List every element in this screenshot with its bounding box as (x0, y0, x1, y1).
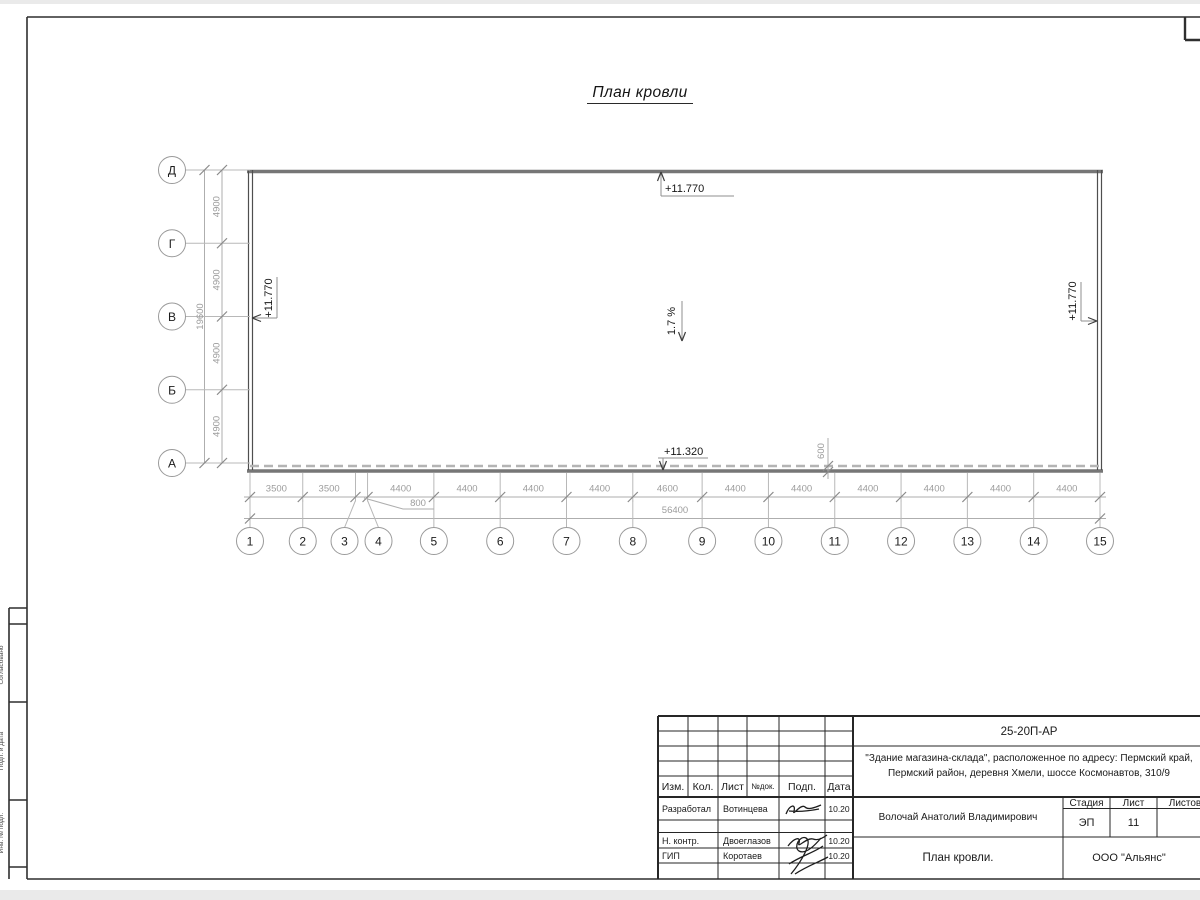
overhang-dim-value: 600 (816, 443, 827, 459)
col-dim-value: 4400 (589, 484, 610, 495)
col-dim-value: 4400 (990, 484, 1011, 495)
tb-header-podp: Подп. (779, 777, 825, 796)
col-axis-label: 11 (829, 535, 842, 549)
slope-value: 1.7 % (666, 307, 678, 335)
col-dim-value: 4400 (857, 484, 878, 495)
row-axis-label: А (168, 457, 176, 471)
col-axis-label: 3 (341, 535, 348, 549)
tb-name-korotaev: Коротаев (720, 848, 779, 863)
row-axis-label: Д (168, 164, 176, 178)
side-stamp-label-1: Согласовано (0, 645, 5, 684)
col-axis-label: 10 (762, 535, 776, 549)
tb-role-razrabotal: Разработал (659, 799, 718, 819)
col-dim-value: 4400 (725, 484, 746, 495)
tb-approver: Волочай Анатолий Владимирович (853, 798, 1063, 836)
roof-plan-canvas: Согласовано Подп. и дата Инв. № подл. ДГ… (0, 0, 1200, 900)
tb-header-ndok: №док. (747, 777, 779, 796)
col-axis-label: 7 (563, 535, 570, 549)
signature-gip (789, 838, 828, 874)
row-dim-value: 4900 (212, 416, 223, 437)
tb-sheet-label: Лист (1110, 797, 1157, 809)
slope-annotation: 1.7 % (666, 301, 686, 341)
elevation-mark-left: +11.770 (252, 277, 277, 322)
row-axis-label: Г (169, 237, 176, 251)
tb-sheets-label: Листов (1157, 797, 1200, 809)
tb-role-gip: ГИП (659, 848, 718, 863)
tb-company: ООО "Альянс" (1063, 837, 1195, 879)
side-stamp-strip: Согласовано Подп. и дата Инв. № подл. (0, 608, 27, 879)
tb-doc-number: 25-20П-АР (853, 717, 1200, 746)
col-dim-value: 3500 (319, 484, 340, 495)
overhang-dimension: 600 (816, 438, 833, 479)
col-axis-label: 15 (1093, 535, 1107, 549)
tb-name-dvoeglazov: Двоеглазов (720, 833, 779, 848)
row-total-dim: 19600 (195, 303, 206, 329)
elevation-top-value: +11.770 (665, 183, 704, 195)
tb-date-3: 10.20 (825, 848, 853, 863)
tb-sheet-value: 11 (1110, 809, 1157, 836)
tb-project-line1: "Здание магазина-склада", расположенное … (858, 751, 1200, 765)
col-dim-value: 4600 (657, 484, 678, 495)
col-axis-label: 12 (894, 535, 908, 549)
sheet-page: { "sheet": { "drawing_title": "План кров… (0, 0, 1200, 900)
narrow-bay-dim-value: 800 (410, 498, 426, 509)
side-stamp-label-3: Инв. № подл. (0, 813, 5, 854)
row-dim-value: 4900 (212, 269, 223, 290)
signatures (786, 805, 828, 874)
row-axis-label: В (168, 310, 176, 324)
tb-stage-value: ЭП (1063, 809, 1110, 836)
tb-header-kol: Кол. (688, 777, 718, 796)
col-axis-label: 1 (247, 535, 254, 549)
side-stamp-label-2: Подп. и дата (0, 731, 5, 770)
elevation-bottom-value: +11.320 (664, 446, 703, 458)
tb-stage-label: Стадия (1063, 797, 1110, 809)
elevation-left-value: +11.770 (263, 278, 275, 317)
col-dim-value: 4400 (1056, 484, 1077, 495)
tb-drawing-name: План кровли. (853, 837, 1063, 879)
col-axis-label: 13 (961, 535, 975, 549)
elevation-mark-top: +11.770 (658, 172, 735, 196)
tb-date-2: 10.20 (825, 833, 853, 848)
col-axis-leader (345, 501, 356, 528)
col-dim-value: 4400 (791, 484, 812, 495)
col-axis-label: 9 (699, 535, 706, 549)
col-axis-label: 8 (629, 535, 636, 549)
col-axis-leader (368, 501, 379, 528)
row-dim-value: 4900 (212, 343, 223, 364)
column-total-dim: 56400 (662, 505, 688, 516)
sheet-frame (27, 17, 1200, 879)
col-dim-value: 4400 (390, 484, 411, 495)
tb-date-1: 10.20 (825, 799, 853, 819)
tb-name-votintseva: Вотинцева (720, 799, 779, 819)
tb-header-izm: Изм. (658, 777, 688, 796)
col-dim-value: 4400 (924, 484, 945, 495)
narrow-bay-dim: 800 (364, 498, 434, 509)
col-dim-value: 4400 (523, 484, 544, 495)
elevation-mark-right: +11.770 (1067, 281, 1097, 324)
tb-header-data: Дата (825, 777, 853, 796)
col-axis-label: 2 (299, 535, 306, 549)
col-axis-label: 14 (1027, 535, 1041, 549)
elevation-right-value: +11.770 (1067, 281, 1079, 320)
row-axis-label: Б (168, 383, 176, 397)
col-dim-value: 3500 (266, 484, 287, 495)
col-axis-label: 4 (375, 535, 382, 549)
signature-votintseva (786, 805, 821, 814)
row-dim-value: 4900 (212, 196, 223, 217)
tb-role-nkontr: Н. контр. (659, 833, 718, 848)
tb-project-line2: Пермский район, деревня Хмели, шоссе Кос… (858, 766, 1200, 780)
tb-header-list: Лист (718, 777, 747, 796)
col-axis-label: 5 (431, 535, 438, 549)
col-axis-label: 6 (497, 535, 504, 549)
col-dim-value: 4400 (456, 484, 477, 495)
